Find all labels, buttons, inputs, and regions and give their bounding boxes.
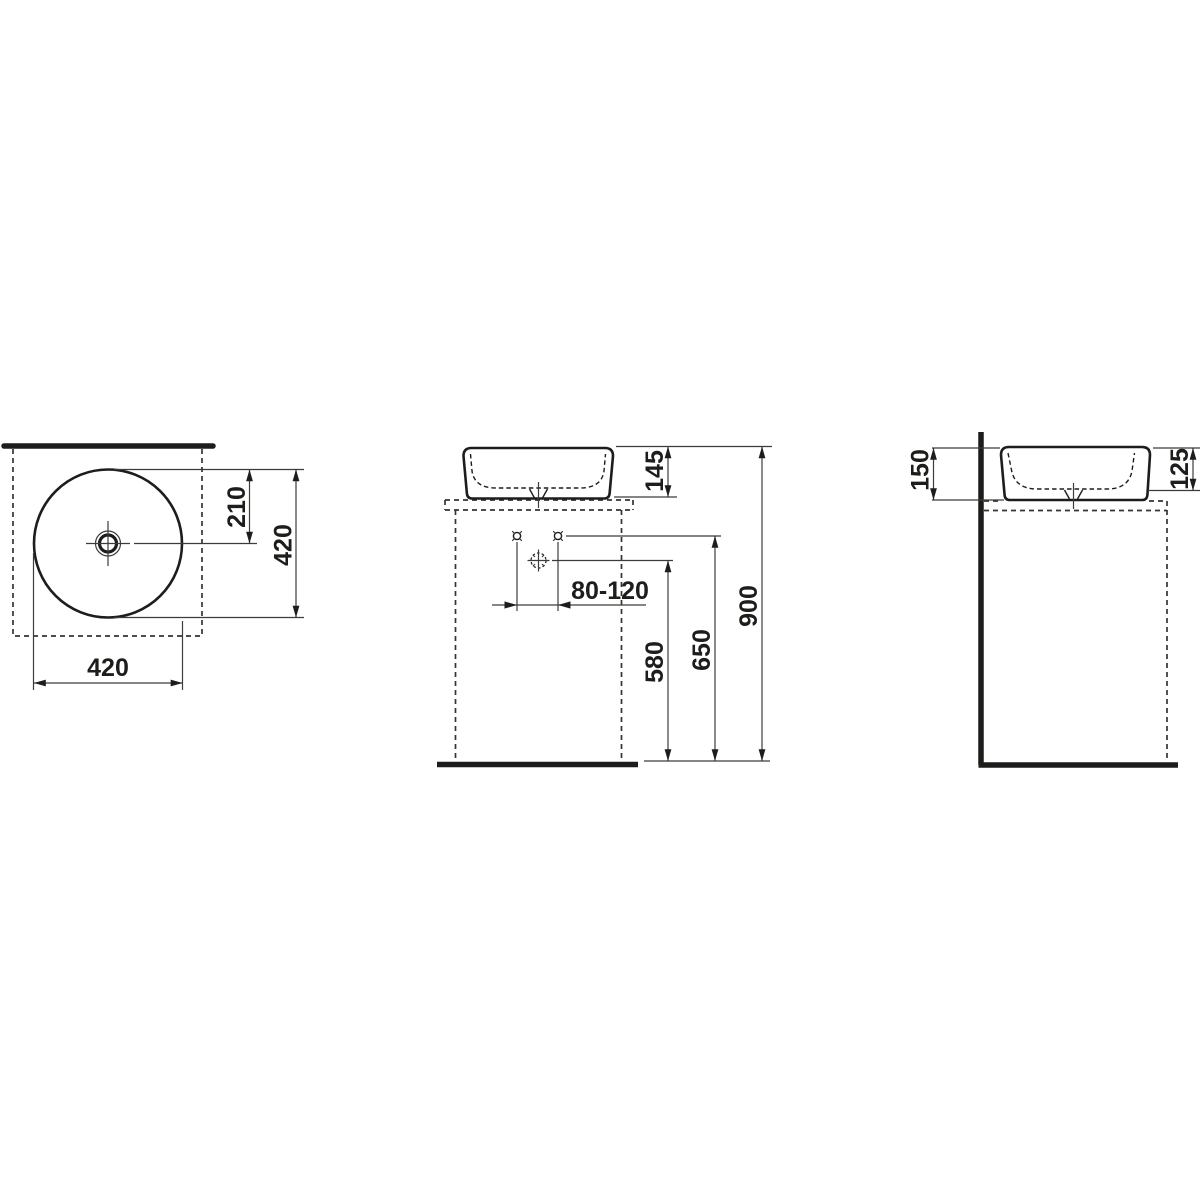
dim-label-width: 420 [87,654,129,682]
dim-label-drain-height: 580 [641,641,669,683]
dim-label-supply-height: 650 [688,629,716,671]
faucet-hole-symbol-left [512,531,522,541]
dim-label-height: 420 [270,524,298,566]
faucet-hole-symbol-right [553,531,563,541]
faucet-range-arrow-right [558,601,571,608]
drawing-canvas: 210 420 420 [0,0,1200,1200]
dim-label-faucet-range: 80-120 [571,577,649,605]
side-view: 150 125 [907,432,1200,765]
countertop-dashed-slab [445,500,633,762]
dim-label-back-height: 150 [907,449,935,491]
dim-label-basin-height: 145 [641,450,669,492]
basin-outline [1001,447,1150,500]
top-view: 210 420 420 [4,446,304,690]
technical-drawing-page: 210 420 420 [0,0,1200,1200]
dim-label-center-offset: 210 [223,486,251,528]
front-view: 80-120 145 580 650 900 [437,447,772,765]
faucet-range-arrow-left [505,601,518,608]
dim-label-rim-height: 900 [735,585,763,627]
waste-outlet-symbol [528,550,550,572]
countertop-dashed-slab [984,501,1167,762]
dim-label-front-height: 125 [1166,448,1194,490]
